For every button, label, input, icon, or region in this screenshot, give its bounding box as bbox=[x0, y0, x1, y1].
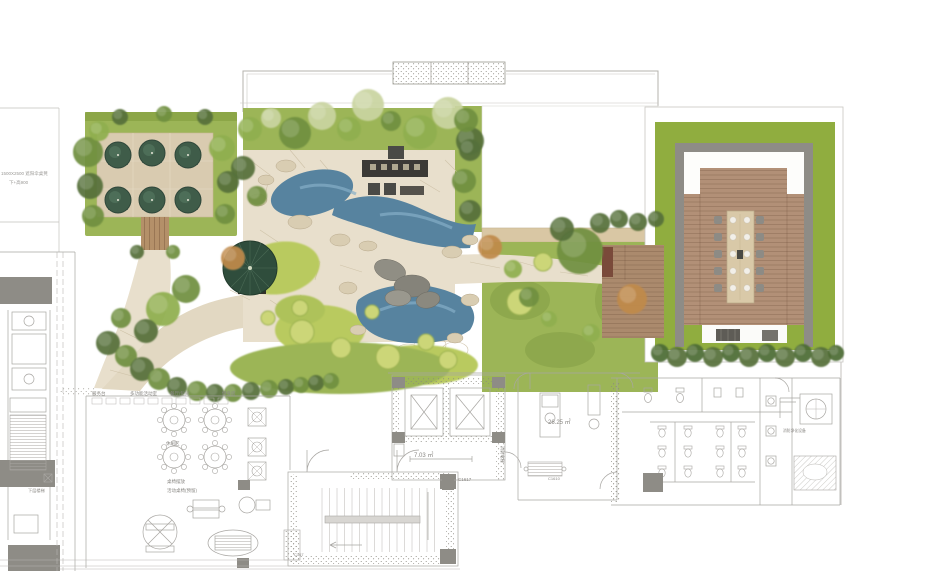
code-c1610: C1610 bbox=[548, 476, 561, 481]
restroom bbox=[611, 378, 792, 505]
left-note-line1: 1500X2500 遮阳伞桌凳 bbox=[1, 170, 48, 177]
deck-planter bbox=[602, 247, 613, 277]
landscape-plan-canvas: 1500X2500 遮阳伞桌凳 下+高900 服务台 多功能活动室 餐厅/包间 … bbox=[0, 0, 942, 571]
label-tables2: 活动桌椅(预留) bbox=[167, 487, 197, 494]
left-note-line2: 下+高900 bbox=[9, 179, 29, 186]
purification-label: 消防净化设备 bbox=[783, 428, 806, 433]
label-dining: 餐厅/包间 bbox=[170, 390, 190, 397]
label-lounge: 休闲区 bbox=[166, 440, 180, 447]
office-area-label: 26.25 ㎡ bbox=[548, 418, 571, 426]
roof-void bbox=[482, 106, 658, 228]
label-tables1: 桌椅摆放 bbox=[167, 478, 185, 485]
elevator-shaft-1 bbox=[405, 388, 443, 436]
side-cabinet bbox=[762, 330, 778, 341]
left-service-strip bbox=[0, 252, 75, 571]
pavilion bbox=[645, 107, 843, 362]
label-stairs-lower: 下层楼梯 bbox=[28, 487, 45, 494]
mech-room bbox=[780, 378, 840, 505]
office-room bbox=[518, 378, 620, 502]
round-tables bbox=[157, 403, 231, 473]
edge-hatch-band bbox=[60, 387, 96, 395]
elevator-shaft-2 bbox=[450, 388, 490, 436]
label-gym: 健身房 bbox=[222, 390, 236, 397]
fire-elevator-label: 消防电梯 bbox=[499, 446, 506, 463]
label-multi: 多功能活动室 bbox=[130, 390, 157, 397]
code-c1617: C1617 bbox=[458, 477, 472, 482]
expansion-joint bbox=[393, 62, 505, 84]
planter-boxes bbox=[248, 408, 266, 480]
code-c167: C167 bbox=[294, 552, 304, 557]
toilet-fixtures bbox=[658, 426, 746, 477]
elevator-area-label: 7.03 ㎡ bbox=[414, 451, 433, 459]
function-room bbox=[86, 396, 300, 568]
plan-drawing: 1500X2500 遮阳伞桌凳 下+高900 服务台 多功能活动室 餐厅/包间 … bbox=[0, 0, 942, 571]
label-service: 服务台 bbox=[92, 390, 106, 397]
stair-core bbox=[288, 450, 458, 566]
